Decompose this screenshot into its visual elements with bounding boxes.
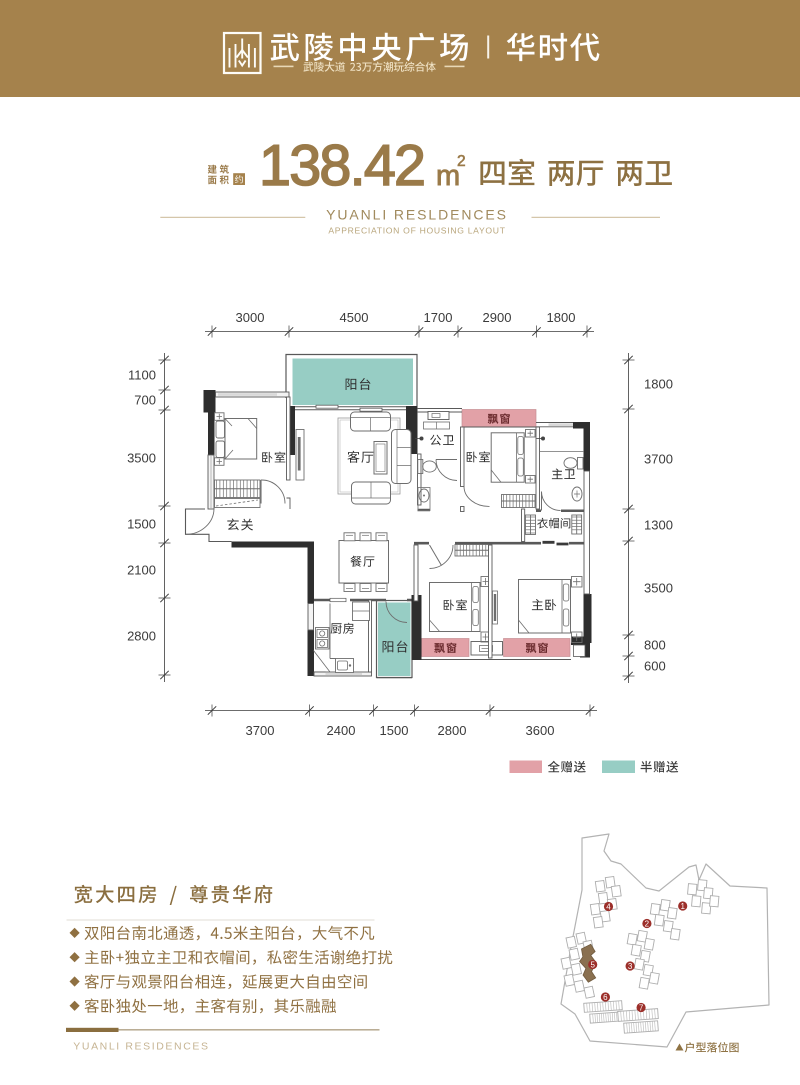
svg-text:1300: 1300 xyxy=(644,518,673,533)
svg-text:YUANLI RESLDENCES: YUANLI RESLDENCES xyxy=(326,207,508,223)
svg-text:2800: 2800 xyxy=(438,723,467,738)
svg-text:7: 7 xyxy=(639,1004,644,1013)
svg-text:3500: 3500 xyxy=(127,451,156,466)
svg-text:3000: 3000 xyxy=(236,310,265,325)
svg-text:1800: 1800 xyxy=(547,310,576,325)
svg-text:5: 5 xyxy=(590,961,595,970)
svg-text:2800: 2800 xyxy=(127,629,156,644)
svg-text:1500: 1500 xyxy=(127,517,156,532)
svg-text:600: 600 xyxy=(644,659,666,674)
svg-text:3700: 3700 xyxy=(644,452,673,467)
svg-text:2: 2 xyxy=(645,920,650,929)
svg-text:1800: 1800 xyxy=(644,377,673,392)
svg-text:3: 3 xyxy=(628,962,633,971)
svg-text:138.42: 138.42 xyxy=(259,134,426,198)
svg-text:2400: 2400 xyxy=(327,723,356,738)
svg-text:2: 2 xyxy=(457,153,466,170)
svg-text:4: 4 xyxy=(606,903,611,912)
svg-text:3500: 3500 xyxy=(644,581,673,596)
svg-text:6: 6 xyxy=(603,993,608,1002)
svg-text:1500: 1500 xyxy=(380,723,409,738)
svg-text:3700: 3700 xyxy=(246,723,275,738)
svg-text:700: 700 xyxy=(134,393,156,408)
svg-text:1: 1 xyxy=(680,902,685,911)
svg-text:4500: 4500 xyxy=(340,310,369,325)
svg-text:2900: 2900 xyxy=(483,310,512,325)
svg-text:2100: 2100 xyxy=(127,563,156,578)
svg-text:YUANLI RESIDENCES: YUANLI RESIDENCES xyxy=(73,1041,209,1053)
svg-text:APPRECIATION OF HOUSING LAY: APPRECIATION OF HOUSING LAYOUT xyxy=(328,226,505,236)
svg-text:1700: 1700 xyxy=(424,310,453,325)
svg-text:1100: 1100 xyxy=(128,368,156,383)
svg-text:800: 800 xyxy=(644,638,666,653)
svg-text:3600: 3600 xyxy=(526,723,555,738)
